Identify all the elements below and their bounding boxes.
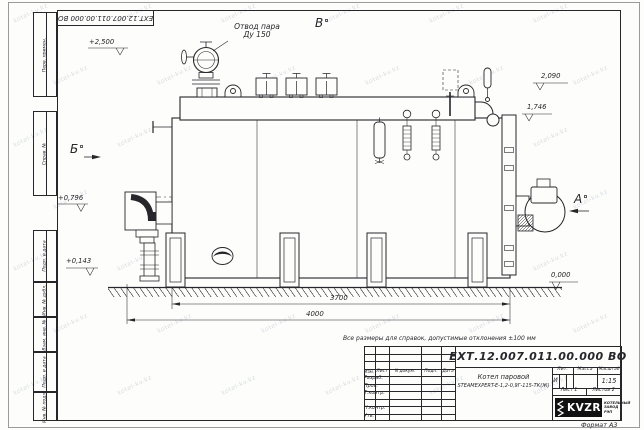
tb-row-checked: Пров. [364,384,389,392]
tb-sheets: Листов 2 [586,388,621,395]
pipe-elbow [475,68,499,126]
kvzr-logo: KVZR [555,398,602,417]
tb-product-name-2: STEAMEXPERT-Е-1,2-0,9Г-115-ТК(Ж) [455,381,552,391]
side-stamp-podp-data-2: Подп. и дата [33,352,57,392]
tb-row-approved: Утв. [364,414,389,422]
side-stamp-podp-data-1: Подп. и дата [33,230,57,282]
view-marker-a: А [574,193,587,206]
tb-doc-number: ЕХТ.12.007.011.00.000 ВО [455,346,621,367]
drain-valve [153,121,172,133]
callout-line2: Ду 150 [224,31,290,39]
tb-row-developed: Разраб. [364,376,389,384]
tolerance-note: Все размеры для справок, допустимые откл… [343,336,536,342]
side-stamp-vzam-inv: Взам. инв. № [33,317,57,352]
manhole [212,248,233,265]
tb-litera-header: Лит. [552,367,573,374]
elevation-label-1746: 1,746 [527,104,546,111]
elevation-label-0796: +0,796 [58,195,83,202]
view-sub-icon [325,19,328,22]
rear-flange [502,115,516,275]
elevation-label-0000: 0,000 [551,272,570,279]
tb-col-izm: Изм. [364,369,376,377]
format-label: Формат А3 [581,422,617,429]
tb-row-ncontrol: Н.контр. [364,406,389,414]
safety-valves [256,74,337,98]
steam-drum [180,97,475,120]
logo-text: KVZR [567,402,601,414]
drawing-sheet: kotel-kv.kzkotel-kv.kzkotel-kv.kzkotel-k… [0,0,644,430]
tb-col-doc: N докум. [389,369,421,377]
side-stamp-inv-dubl: Инв. № дубл. [33,282,57,317]
corner-doc-stamp: ЕХТ.12.007.011.00.000 ВО [57,10,154,26]
elevation-label-2090: 2,090 [541,73,560,80]
dim-label-3700: 3700 [330,295,348,302]
tb-scale-value: 1:15 [597,374,621,388]
view-sub-icon [80,145,83,148]
tb-mass-header: Масса [573,367,597,374]
separator-cylinder [374,118,385,164]
side-stamp-inv-podl: Инв. № подл. [33,392,57,421]
view-marker-b: Б [70,143,83,156]
view-sub-icon [584,195,587,198]
view-marker-v: В [315,17,328,30]
steam-outlet-callout: Отвод пара Ду 150 [224,23,290,39]
corner-doc-number: ЕХТ.12.007.011.00.000 ВО [58,14,153,22]
tb-row-tcontrol: Т.контр. [364,391,389,399]
front-burner [125,192,172,281]
elevation-label-2500: +2,500 [89,39,114,46]
burner [516,179,565,232]
elevation-label-0143: +0,143 [66,258,91,265]
logo-caption: КОТЕЛЬНЫЙ ЗАВОД РЭП [604,401,621,414]
tb-col-date: Дата [441,369,455,377]
tb-litera-value: И [552,374,559,388]
tb-col-list: Лист [375,369,389,377]
logo-zigzag-icon [556,400,565,416]
side-stamp-perv-primen: Перв. примен. [33,12,57,97]
callout-leader [213,41,228,51]
tb-scale-header: Масштаб [597,367,621,374]
dim-label-4000: 4000 [306,311,324,318]
side-stamp-sprav-no: Справ. № [33,111,57,196]
tb-col-sign: Подп. [421,369,441,377]
tb-sheet: Лист 1 [552,388,586,395]
